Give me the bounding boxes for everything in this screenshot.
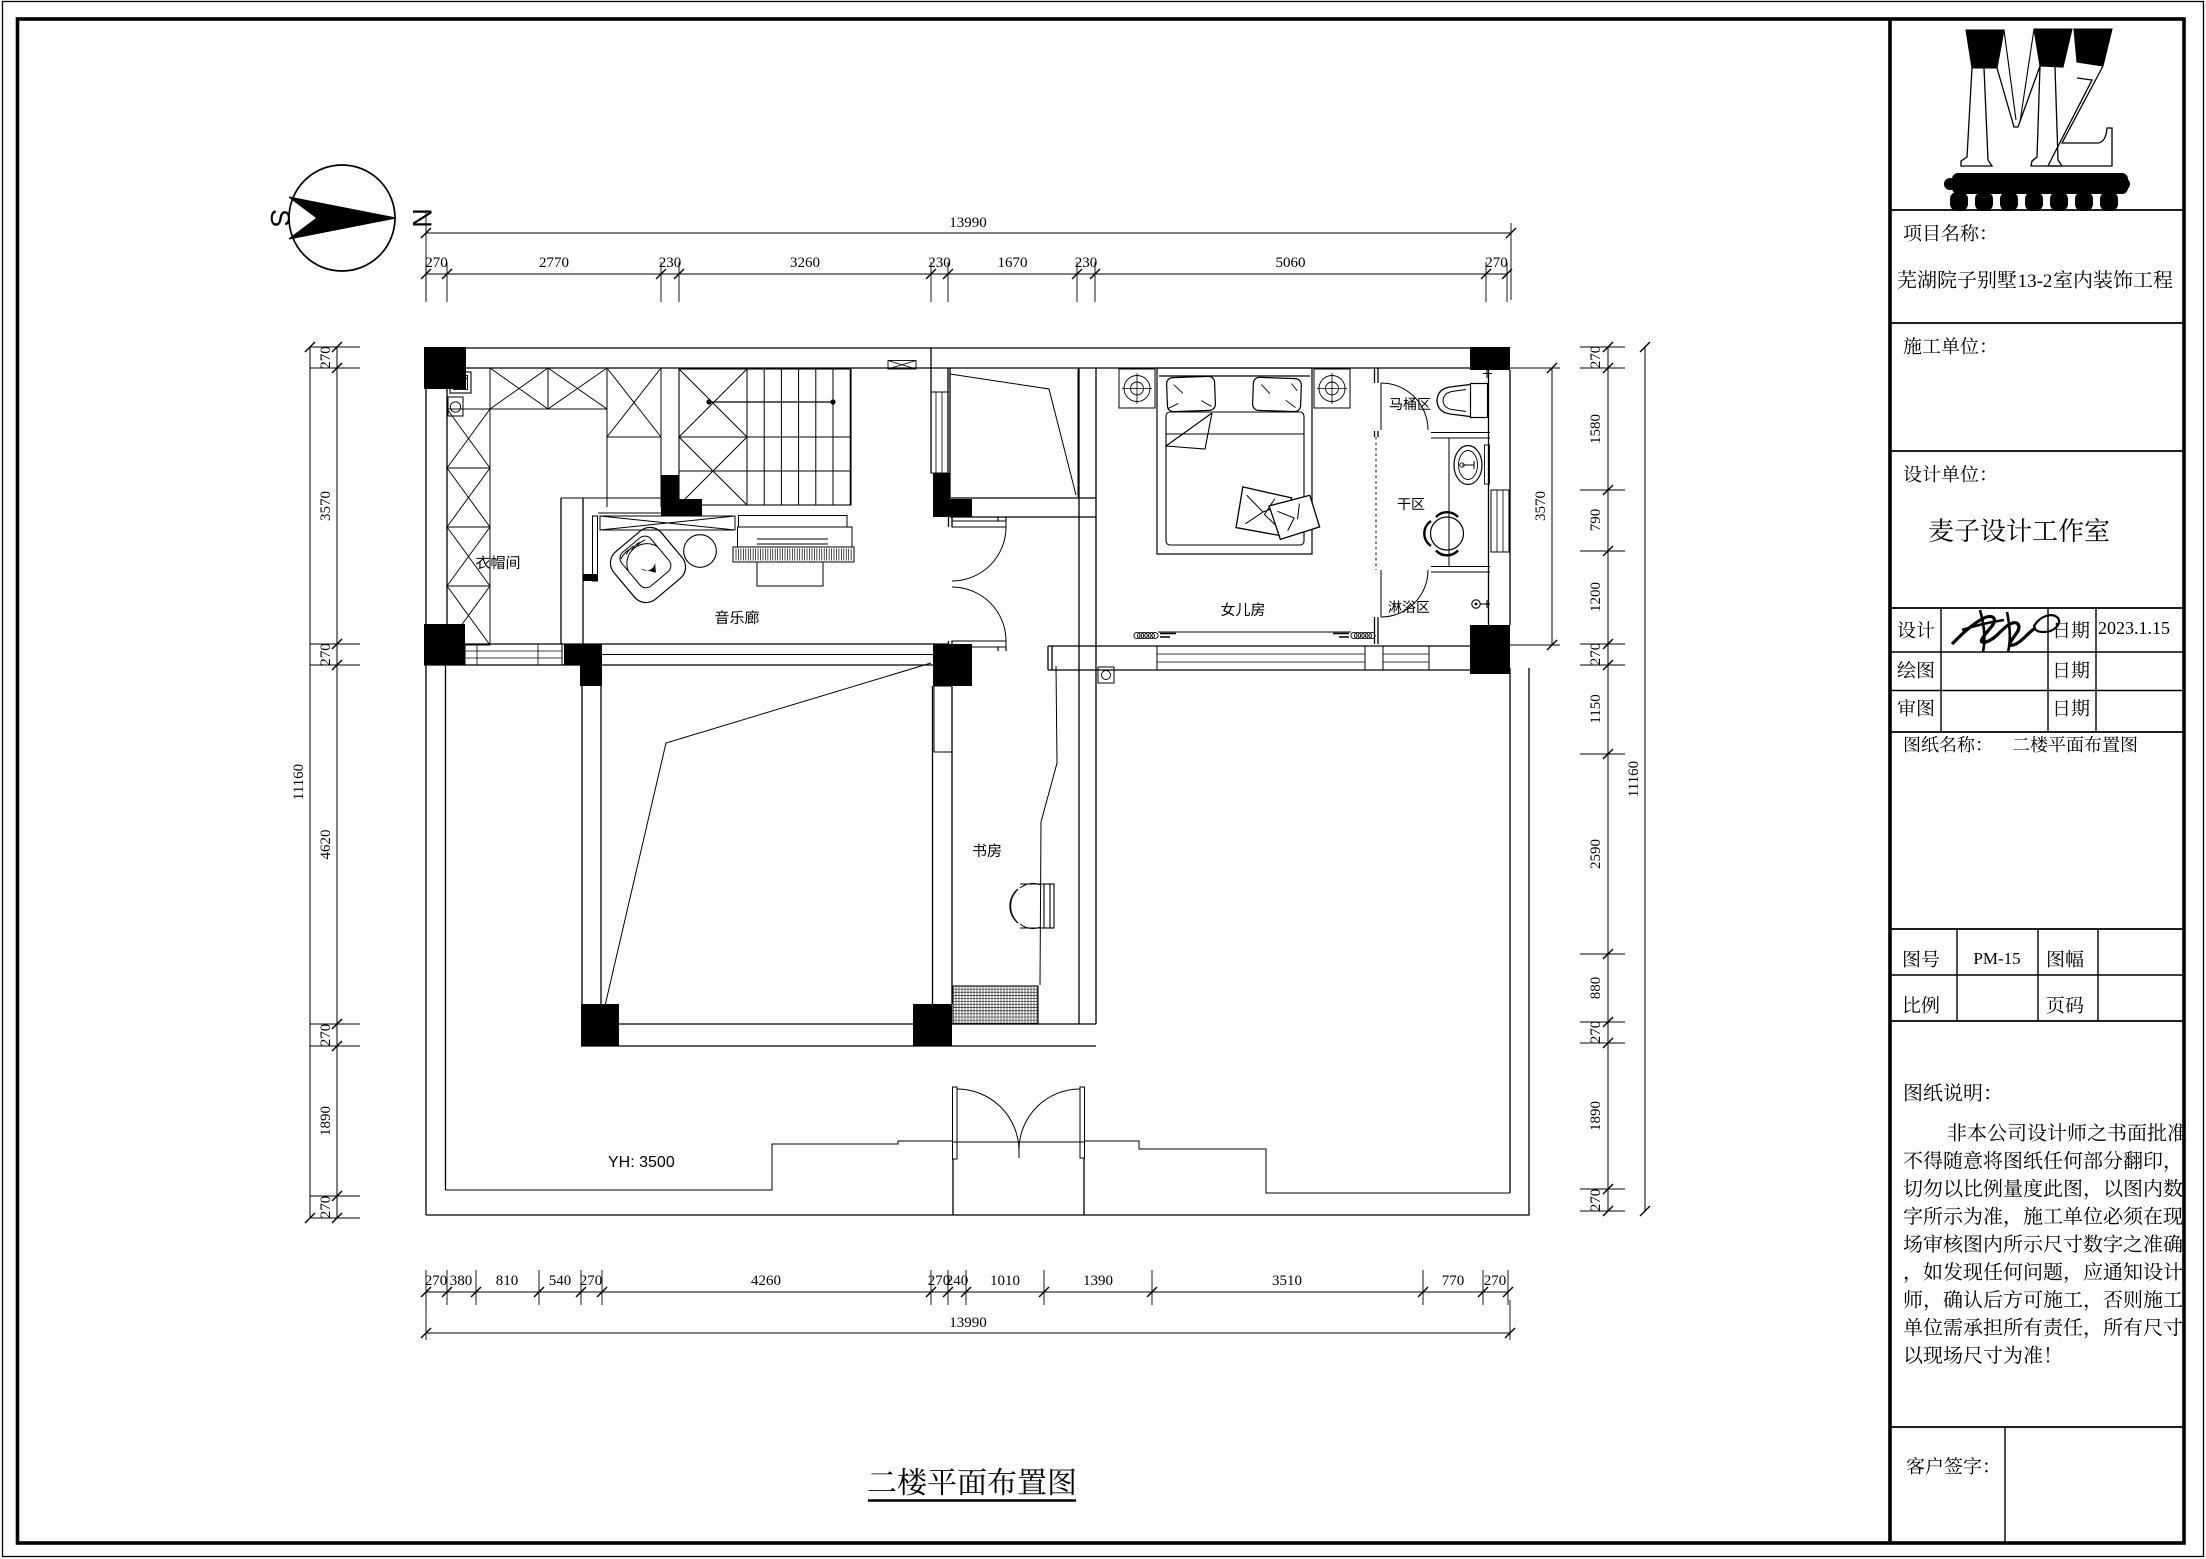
svg-text:270: 270 (318, 346, 334, 369)
svg-text:230: 230 (1075, 255, 1098, 271)
svg-text:270: 270 (1588, 1021, 1604, 1044)
svg-text:770: 770 (1442, 1273, 1465, 1289)
svg-text:11160: 11160 (1626, 761, 1642, 797)
svg-text:270: 270 (318, 1196, 334, 1219)
svg-text:540: 540 (549, 1273, 572, 1289)
svg-text:2590: 2590 (1588, 839, 1604, 869)
svg-text:PM-15: PM-15 (1973, 949, 2020, 968)
svg-text:N: N (407, 208, 437, 228)
svg-text:790: 790 (1588, 509, 1604, 532)
svg-text:270: 270 (1588, 643, 1604, 666)
svg-text:3260: 3260 (790, 255, 820, 271)
svg-text:13990: 13990 (949, 215, 987, 231)
svg-text:270: 270 (1588, 346, 1604, 369)
svg-text:4260: 4260 (751, 1273, 781, 1289)
svg-text:270: 270 (318, 643, 334, 666)
svg-text:380: 380 (450, 1273, 473, 1289)
svg-text:2023.1.15: 2023.1.15 (2098, 618, 2170, 638)
svg-text:1200: 1200 (1588, 582, 1604, 612)
svg-text:240: 240 (946, 1273, 969, 1289)
svg-text:270: 270 (1588, 1189, 1604, 1212)
svg-text:5060: 5060 (1276, 255, 1306, 271)
svg-text:1390: 1390 (1083, 1273, 1113, 1289)
svg-text:270: 270 (425, 255, 448, 271)
svg-text:1010: 1010 (990, 1273, 1020, 1289)
svg-text:2770: 2770 (539, 255, 569, 271)
svg-text:3570: 3570 (318, 491, 334, 521)
svg-text:880: 880 (1588, 977, 1604, 1000)
svg-text:270: 270 (1485, 255, 1508, 271)
svg-text:3570: 3570 (1533, 491, 1549, 521)
svg-text:1670: 1670 (998, 255, 1028, 271)
svg-text:230: 230 (928, 255, 951, 271)
svg-text:270: 270 (580, 1273, 603, 1289)
svg-text:1890: 1890 (318, 1106, 334, 1136)
svg-text:1150: 1150 (1588, 694, 1604, 723)
svg-text:230: 230 (659, 255, 682, 271)
svg-text:1890: 1890 (1588, 1101, 1604, 1131)
svg-text:3510: 3510 (1272, 1273, 1302, 1289)
svg-text:1580: 1580 (1588, 414, 1604, 444)
svg-text:270: 270 (1484, 1273, 1507, 1289)
svg-text:YH: 3500: YH: 3500 (608, 1154, 675, 1171)
svg-text:11160: 11160 (291, 764, 307, 800)
svg-text:S: S (265, 209, 295, 227)
svg-text:13990: 13990 (949, 1315, 987, 1331)
svg-text:270: 270 (425, 1273, 448, 1289)
svg-text:13-2: 13-2 (2018, 271, 2053, 292)
svg-text:270: 270 (318, 1024, 334, 1047)
svg-text:4620: 4620 (318, 830, 334, 860)
svg-text:810: 810 (496, 1273, 519, 1289)
